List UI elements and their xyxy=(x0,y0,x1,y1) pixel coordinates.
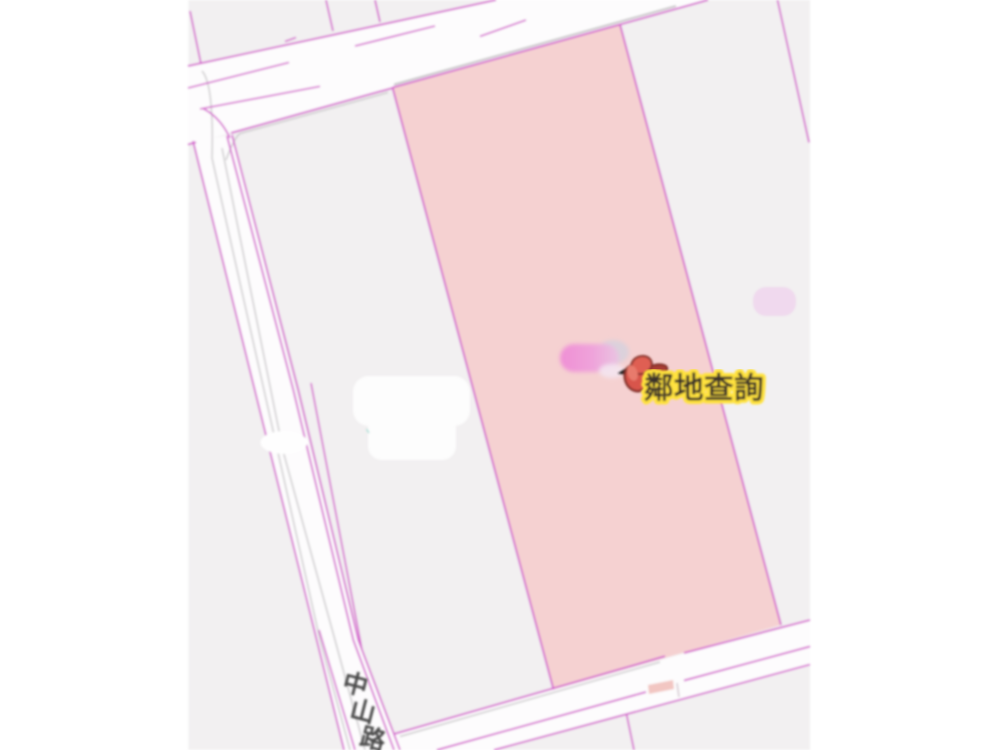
svg-text:鄰地查詢: 鄰地查詢 xyxy=(644,371,764,405)
